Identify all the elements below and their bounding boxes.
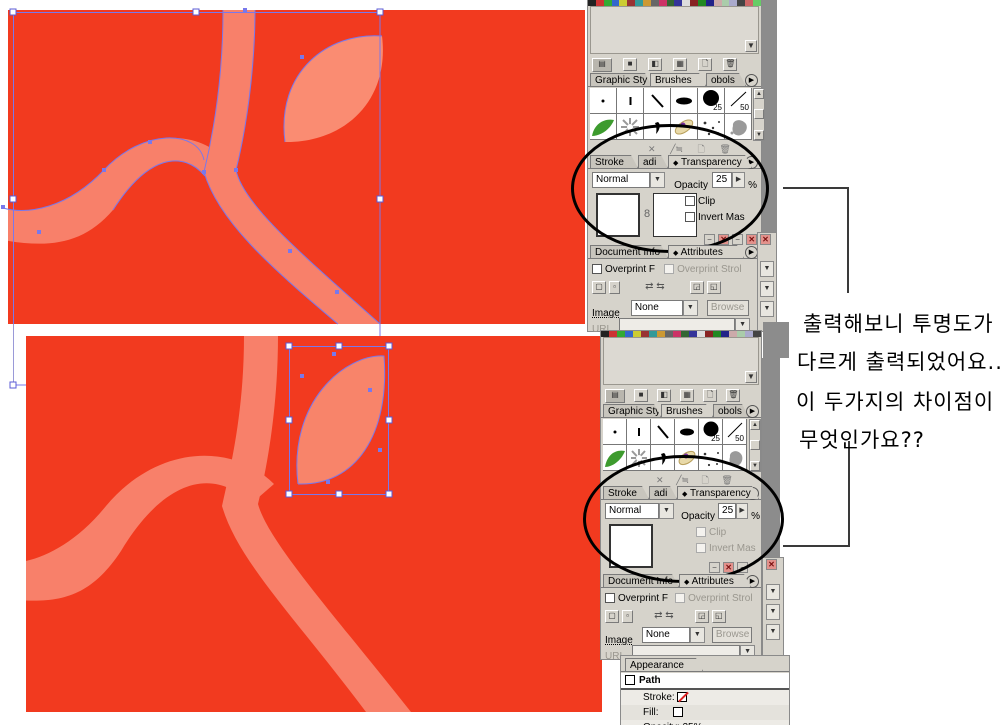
panel-menu-icon: ▶	[749, 249, 754, 256]
brush-dash[interactable]	[627, 419, 651, 445]
show-all-swatches-button[interactable]: ▤	[592, 58, 612, 72]
use-nonzero-fill-rule-button[interactable]: ◲	[695, 610, 709, 623]
appearance-row-fill[interactable]: Fill:	[621, 705, 789, 720]
browse-button[interactable]: Browse	[707, 300, 749, 316]
scroll-down-icon: ▼	[752, 463, 758, 469]
brush-dot[interactable]	[590, 88, 617, 114]
docked-palette-sliver-top: ✕ ▼ ▼ ▼	[757, 232, 777, 332]
panel-menu-icon: ▶	[750, 408, 755, 415]
annotation-circle-top	[571, 124, 769, 253]
swatches-scroll-down-button[interactable]: ▼	[745, 40, 757, 52]
overprint-stroke-checkbox[interactable]	[664, 264, 674, 274]
attributes-button-row: ▢ ▫ ⇄ ⇆ ◲ ◱	[592, 280, 758, 294]
show-all-swatches-button[interactable]: ▤	[605, 389, 625, 403]
appearance-row-stroke[interactable]: Stroke:	[621, 690, 789, 705]
branch-artwork-bottom	[26, 336, 602, 712]
image-map-dropdown-button[interactable]: ▼	[690, 627, 705, 643]
brush-ellipse[interactable]	[671, 88, 698, 114]
delete-swatch-button[interactable]: 🗑	[726, 389, 740, 402]
swatches-button-row: ▤ ■ ◧ ▦ 🗋 🗑	[605, 388, 759, 403]
scroll-down-icon: ▼	[747, 372, 755, 381]
docked-palette-sliver-bottom: ✕ ▼ ▼ ▼	[762, 557, 784, 660]
tab-appearance[interactable]: Appearance	[625, 658, 703, 671]
image-map-select[interactable]: None	[642, 627, 690, 643]
show-pattern-swatches-button[interactable]: ▦	[680, 389, 694, 402]
show-pattern-swatches-button[interactable]: ▦	[673, 58, 687, 71]
browse-button[interactable]: Browse	[712, 627, 752, 643]
tab-transparency[interactable]: ◆ Transparency	[677, 486, 759, 499]
dropdown-arrow-icon: ▼	[694, 631, 701, 638]
brush-circle-25[interactable]: 25	[699, 419, 723, 445]
handwritten-note-line-3: 이 두가지의 차이점이	[796, 386, 994, 416]
dropdown-arrow-icon: ▼	[739, 321, 746, 328]
dont-show-center-button[interactable]: ▫	[609, 281, 620, 294]
dropdown-arrow-icon[interactable]: ▼	[760, 261, 774, 277]
close-button[interactable]: ✕	[760, 234, 771, 245]
close-button[interactable]: ✕	[746, 234, 757, 245]
dropdown-arrow-icon[interactable]: ▼	[760, 301, 774, 317]
palette-marker-icon: ◆	[684, 579, 689, 586]
use-nonzero-fill-rule-button[interactable]: ◲	[690, 281, 704, 294]
overprint-stroke-label: Overprint Strol	[677, 264, 741, 275]
reverse-path-direction-icons[interactable]: ⇄ ⇆	[654, 610, 674, 621]
show-gradient-swatches-button[interactable]: ◧	[657, 389, 671, 402]
annotation-circle-bottom	[583, 455, 784, 583]
artboard-top[interactable]	[8, 10, 585, 324]
tab-transparency[interactable]: ◆ Transparency	[668, 155, 752, 168]
image-map-row: Image None▼ Browse	[592, 300, 749, 319]
show-gradient-swatches-button[interactable]: ◧	[648, 58, 662, 71]
attributes-tabbar: Document Info ◆ Attributes ▶	[588, 245, 761, 259]
brush-dash[interactable]	[617, 88, 644, 114]
palette-marker-icon: ◆	[673, 250, 678, 257]
brush-circle-25[interactable]: 25	[698, 88, 725, 114]
handwritten-note-line-4: 무엇인가요??	[799, 424, 925, 454]
overprint-fill-checkbox[interactable]	[592, 264, 602, 274]
dropdown-arrow-icon[interactable]: ▼	[766, 624, 780, 640]
image-map-row: Image None▼ Browse	[605, 627, 752, 646]
show-color-swatches-button[interactable]: ■	[623, 58, 637, 71]
brush-diagonal[interactable]	[644, 88, 671, 114]
brushes-scroll-down[interactable]: ▼	[750, 461, 760, 471]
scroll-down-icon: ▼	[747, 41, 755, 50]
brushes-scrollbar[interactable]: ▲ ▼	[749, 419, 761, 472]
artboard-bottom[interactable]	[26, 336, 602, 712]
tab-attributes[interactable]: ◆ Attributes	[668, 245, 744, 258]
reverse-path-direction-icons[interactable]: ⇄ ⇆	[645, 281, 665, 292]
annotation-leader-top-v	[847, 187, 849, 293]
brushes-scroll-thumb[interactable]	[750, 440, 760, 450]
dropdown-arrow-icon[interactable]: ▼	[766, 604, 780, 620]
brushes-menu-button[interactable]: ▶	[746, 405, 759, 418]
show-center-button[interactable]: ▢	[605, 610, 619, 623]
handwritten-note-line-2: 다르게 출력되었어요..	[797, 346, 1000, 376]
panel-menu-icon: ▶	[749, 77, 754, 84]
overprint-fill-label: Overprint F	[618, 593, 668, 604]
screenshot-root: ▼ ▤ ■ ◧ ▦ 🗋 🗑 Graphic Sty Brushes obols …	[0, 0, 1000, 725]
brushes-scroll-up[interactable]: ▲	[754, 89, 764, 99]
handwritten-note-line-1: 출력해보니 투명도가	[803, 308, 994, 338]
appearance-palette: Appearance Path Stroke: Fill: Opacity: 2…	[620, 655, 790, 725]
image-map-select[interactable]: None	[631, 300, 683, 316]
annotation-leader-bottom-h	[783, 545, 850, 547]
appearance-tabbar: Appearance	[621, 658, 789, 672]
desktop-strip-corner	[763, 322, 789, 358]
overprint-row: Overprint F Overprint Strol	[592, 263, 742, 275]
overprint-fill-checkbox[interactable]	[605, 593, 615, 603]
tab-attributes[interactable]: ◆ Attributes	[679, 574, 751, 587]
brush-diagonal[interactable]	[651, 419, 675, 445]
attributes-button-row: ▢ ▫ ⇄ ⇆ ◲ ◱	[605, 609, 757, 623]
scroll-down-icon: ▼	[756, 132, 762, 138]
use-evenodd-fill-rule-button[interactable]: ◱	[707, 281, 721, 294]
dropdown-arrow-icon[interactable]: ▼	[766, 584, 780, 600]
overprint-stroke-checkbox[interactable]	[675, 593, 685, 603]
scroll-up-icon: ▲	[752, 422, 758, 428]
annotation-leader-bottom-v	[848, 441, 850, 546]
annotation-leader-top-h	[783, 187, 849, 189]
appearance-row-path[interactable]: Path	[621, 673, 789, 690]
overprint-fill-label: Overprint F	[605, 264, 655, 275]
swatches-scroll-down-button[interactable]: ▼	[745, 371, 757, 383]
palette-marker-icon: ◆	[673, 160, 678, 167]
close-button[interactable]: ✕	[766, 559, 777, 570]
branch-artwork-top	[8, 10, 585, 324]
overprint-row: Overprint F Overprint Strol	[605, 592, 753, 604]
dropdown-arrow-icon: ▼	[744, 648, 751, 655]
swatches-button-row: ▤ ■ ◧ ▦ 🗋 🗑	[592, 57, 760, 72]
swatches-list-area[interactable]	[603, 337, 759, 385]
tab-graphic-styles[interactable]: Graphic Sty	[590, 73, 652, 86]
brush-dot[interactable]	[603, 419, 627, 445]
panel-menu-icon: ▶	[750, 578, 755, 585]
brush-line-50[interactable]: 50	[723, 419, 747, 445]
show-color-swatches-button[interactable]: ■	[634, 389, 648, 402]
path-thumbnail-icon	[625, 675, 635, 685]
new-swatch-button[interactable]: 🗋	[698, 58, 712, 71]
dropdown-arrow-icon: ▼	[687, 304, 694, 311]
use-evenodd-fill-rule-button[interactable]: ◱	[712, 610, 726, 623]
tab-symbols[interactable]: obols	[706, 73, 746, 86]
overprint-stroke-label: Overprint Strol	[688, 593, 752, 604]
scroll-up-icon: ▲	[756, 91, 762, 97]
tab-symbols[interactable]: obols	[713, 404, 749, 417]
show-center-button[interactable]: ▢	[592, 281, 606, 294]
brushes-tabbar: Graphic Sty Brushes obols ▶	[601, 404, 761, 418]
brushes-scrollbar[interactable]: ▲ ▼	[753, 88, 765, 141]
fill-swatch-icon	[673, 707, 683, 717]
brushes-menu-button[interactable]: ▶	[745, 74, 758, 87]
brushes-scroll-down[interactable]: ▼	[754, 130, 764, 140]
brushes-scroll-up[interactable]: ▲	[750, 420, 760, 430]
brushes-tabbar: Graphic Sty Brushes obols ▶	[588, 73, 761, 87]
appearance-row-opacity[interactable]: Opacity: 25%	[621, 720, 789, 725]
brushes-scroll-thumb[interactable]	[754, 109, 764, 119]
palette-marker-icon: ◆	[682, 491, 687, 498]
delete-swatch-button[interactable]: 🗑	[723, 58, 737, 71]
swatches-list-area[interactable]	[590, 6, 759, 54]
image-map-dropdown-button[interactable]: ▼	[683, 300, 698, 316]
tab-brushes[interactable]: Brushes	[661, 404, 713, 417]
brush-line-50[interactable]: 50	[725, 88, 752, 114]
attributes-tabbar: Document Info ◆ Attributes ▶	[601, 574, 761, 588]
dropdown-arrow-icon[interactable]: ▼	[760, 281, 774, 297]
tab-brushes[interactable]: Brushes	[650, 73, 706, 86]
brush-ellipse[interactable]	[675, 419, 699, 445]
dont-show-center-button[interactable]: ▫	[622, 610, 633, 623]
tab-graphic-styles[interactable]: Graphic Sty	[603, 404, 661, 417]
new-swatch-button[interactable]: 🗋	[703, 389, 717, 402]
stroke-none-icon	[677, 692, 687, 702]
